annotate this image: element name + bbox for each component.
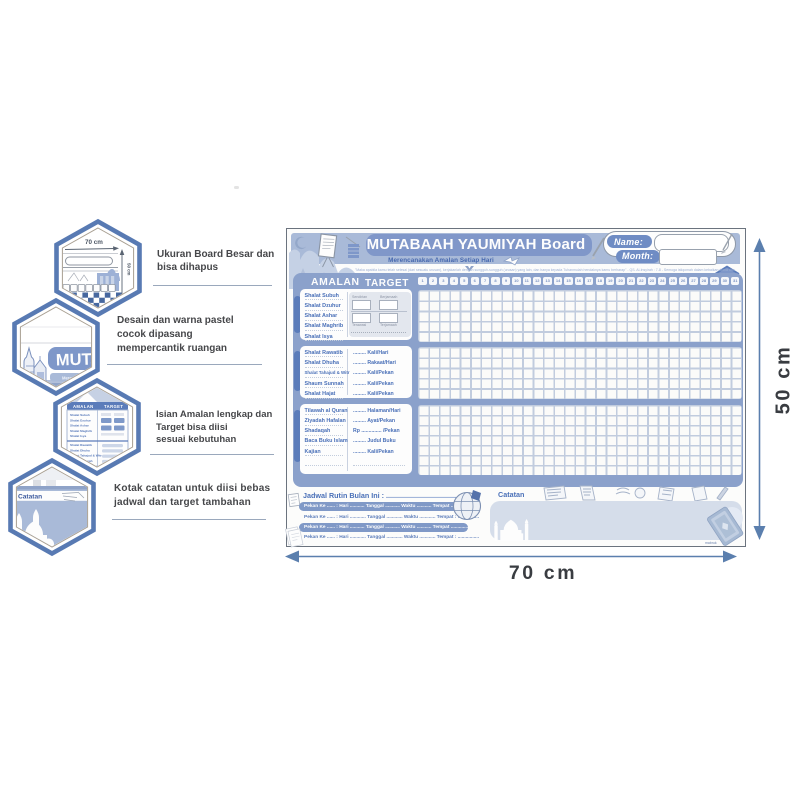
svg-text:Shalat Rawatib: Shalat Rawatib <box>70 443 92 447</box>
svg-text:TARGET: TARGET <box>104 404 123 409</box>
svg-text:Shalat Maghrib: Shalat Maghrib <box>70 429 92 433</box>
svg-text:Shalat Dhuha: Shalat Dhuha <box>70 448 90 452</box>
svg-text:Shalat Dzuhur: Shalat Dzuhur <box>70 418 92 422</box>
svg-text:MUT.: MUT. <box>56 350 95 369</box>
svg-text:Shalat Ashar: Shalat Ashar <box>70 424 90 428</box>
svg-text:50 cm: 50 cm <box>127 263 132 276</box>
svg-text:Shalat Subuh: Shalat Subuh <box>70 413 90 417</box>
svg-text:Catatan: Catatan <box>18 494 42 501</box>
svg-text:AMALAN: AMALAN <box>73 404 94 409</box>
svg-text:Shalat Isya: Shalat Isya <box>70 434 86 438</box>
svg-text:70 cm: 70 cm <box>85 239 103 246</box>
